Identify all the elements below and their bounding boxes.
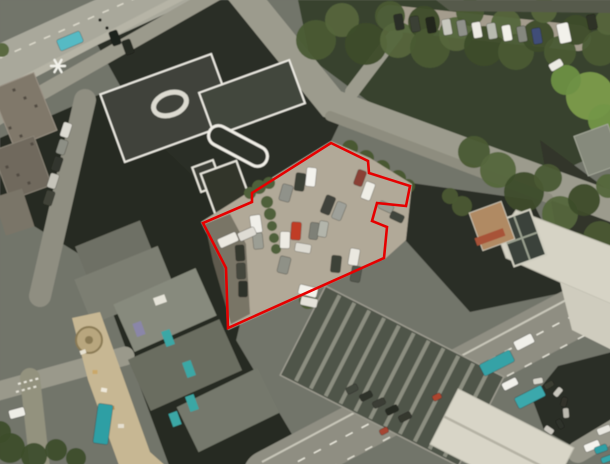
vehicle: [294, 172, 306, 191]
vehicle: [305, 167, 317, 187]
bush: [269, 233, 279, 243]
vehicle: [236, 263, 246, 279]
bush: [264, 208, 276, 220]
aerial-screenshot: [0, 0, 610, 464]
bush: [271, 244, 281, 254]
vehicle: [330, 255, 342, 273]
vehicle: [239, 281, 248, 297]
pedestrian: [105, 26, 108, 29]
construction-debris: [93, 370, 98, 374]
tree-canopy: [442, 188, 458, 204]
bush: [267, 221, 277, 231]
photo-layers: [0, 0, 610, 464]
vehicle: [235, 245, 245, 262]
tree-canopy: [568, 184, 600, 216]
bush: [261, 196, 273, 208]
tree-canopy: [45, 439, 67, 461]
tree-canopy: [534, 164, 562, 192]
pedestrian: [98, 18, 101, 21]
construction-debris: [118, 424, 124, 428]
aerial-photograph: [0, 0, 610, 464]
vehicle: [280, 231, 291, 248]
vehicle: [563, 408, 570, 418]
construction-tank-hub: [85, 336, 93, 344]
vehicle: [290, 222, 301, 241]
rooftop-strip: [436, 0, 610, 13]
